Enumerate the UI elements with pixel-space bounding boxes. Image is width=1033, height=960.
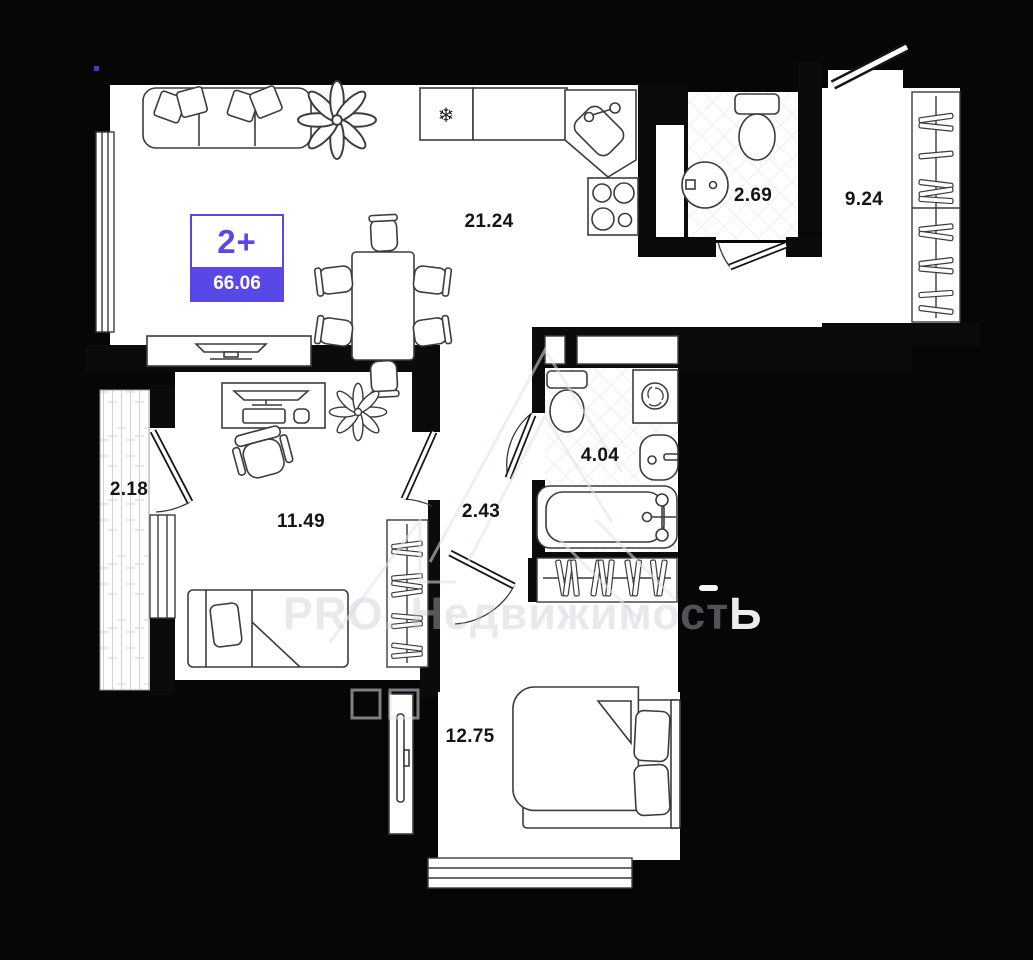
room-label-entrance-hall: 9.24 [845, 189, 883, 211]
fridge-icon: ❄ [438, 105, 455, 127]
double-bed [513, 687, 680, 828]
room-label-bathroom-main: 4.04 [581, 445, 619, 467]
bedroom-bottom-window [428, 858, 632, 888]
rooms-count-label: 2+ [192, 216, 282, 267]
bedroom-balcony-window [150, 515, 175, 618]
watermark-dash [699, 585, 718, 591]
sofa [143, 85, 311, 148]
floorplan-canvas: ❄ [0, 0, 1033, 960]
plant-icon [298, 81, 376, 159]
toilet-small-icon [735, 94, 779, 160]
washing-machine-icon [633, 370, 678, 423]
bathtub-icon [537, 486, 677, 548]
entry-wardrobe [912, 92, 960, 322]
room-label-hallway: 2.43 [462, 501, 500, 523]
bath-door-gap [532, 413, 545, 480]
room-label-bedroom-left: 11.49 [277, 511, 325, 533]
corner-artifact-mark [94, 66, 99, 71]
floorplan-drawing: ❄ [0, 0, 1033, 960]
living-window [96, 132, 114, 332]
watermark-brand-main: PRO. Недвижимост [283, 588, 729, 639]
tv-console [389, 694, 413, 834]
room-label-living: 21.24 [464, 211, 513, 233]
vent-ducts [545, 336, 678, 364]
toilet-main-icon [547, 371, 587, 432]
tv-stand [147, 336, 311, 366]
plant-icon-2 [329, 383, 386, 440]
watermark-brand-last-letter: Ь [729, 588, 762, 639]
total-area-label: 66.06 [192, 267, 282, 300]
watermark-brand: PRO. НедвижимостЬ [283, 588, 763, 640]
desk [222, 383, 325, 428]
apartment-badge: 2+ 66.06 [190, 214, 284, 302]
washbasin-round-icon [682, 162, 728, 208]
stove-icon [588, 178, 638, 235]
washbasin-main-icon [640, 435, 678, 480]
kitchen-counter: ❄ [420, 88, 567, 140]
room-label-bathroom-small: 2.69 [734, 185, 772, 207]
room-label-balcony: 2.18 [110, 479, 148, 501]
room-label-bedroom-bottom: 12.75 [445, 726, 494, 748]
